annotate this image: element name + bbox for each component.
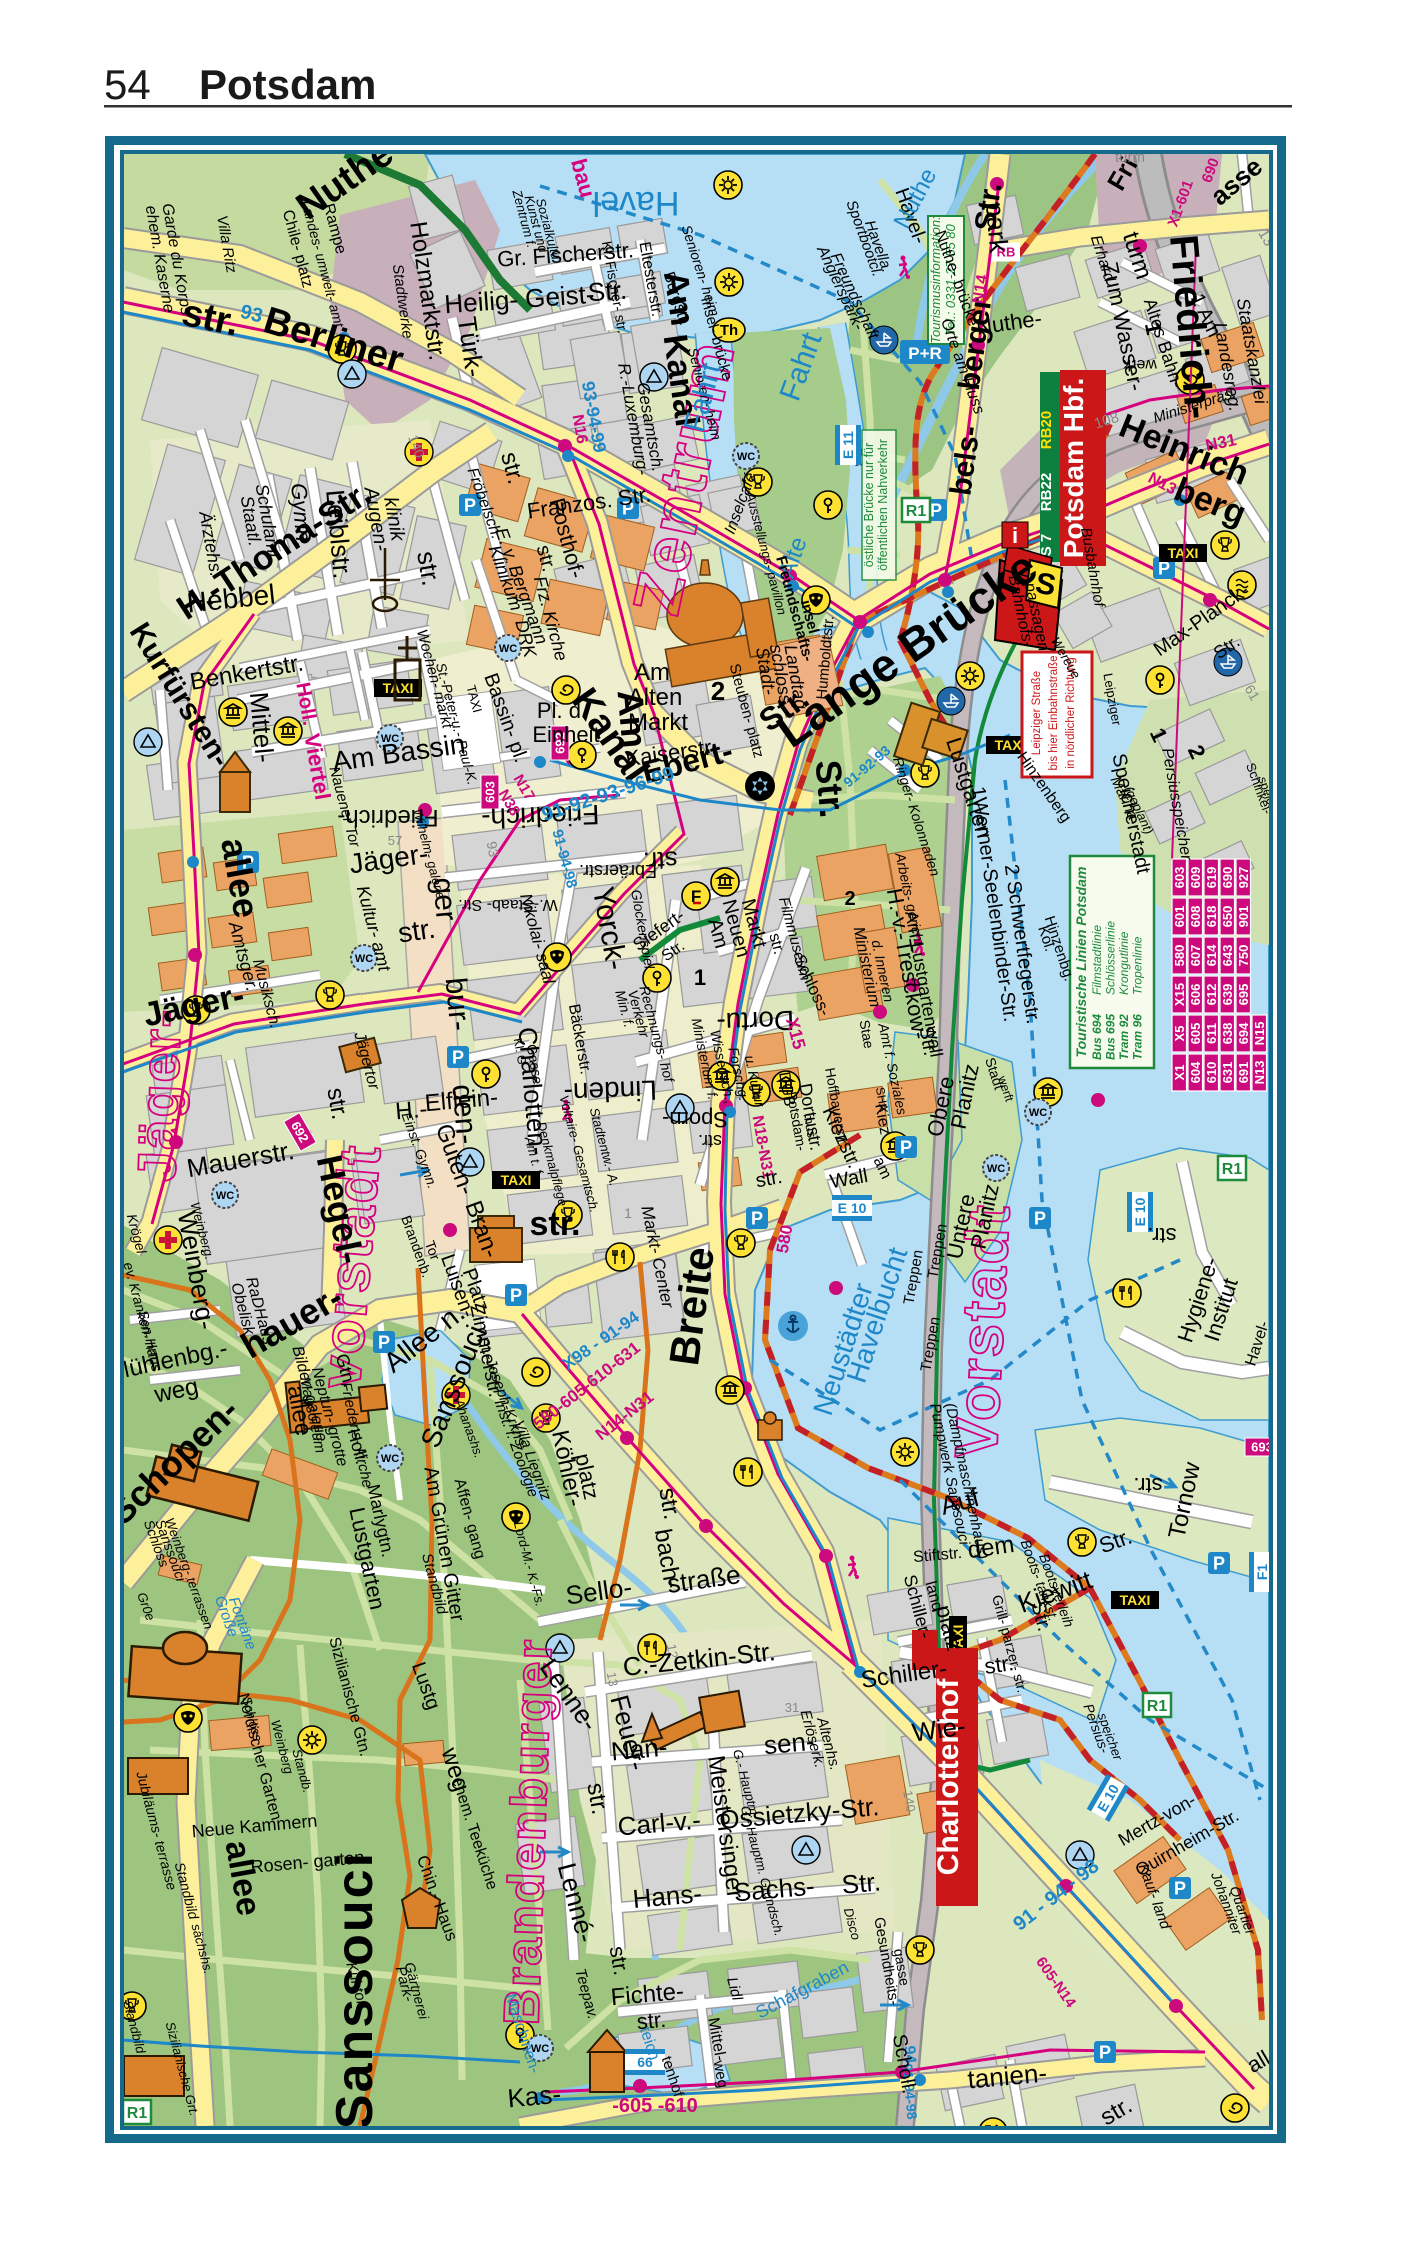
svg-text:1: 1	[694, 965, 706, 990]
svg-text:603: 603	[1172, 867, 1187, 889]
svg-text:S 7: S 7	[1038, 534, 1055, 557]
svg-text:Tram 96: Tram 96	[1131, 1014, 1145, 1060]
svg-text:31: 31	[785, 1700, 799, 1715]
svg-text:Str.: Str.	[808, 758, 854, 819]
svg-text:13: 13	[604, 1671, 621, 1688]
svg-text:Alten: Alten	[628, 684, 683, 711]
svg-text:R1: R1	[127, 2105, 148, 2122]
svg-text:Einheit: Einheit	[532, 722, 599, 747]
svg-text:Pl. d.: Pl. d.	[537, 698, 587, 723]
svg-text:690: 690	[1220, 867, 1235, 889]
svg-text:901: 901	[1236, 906, 1251, 928]
svg-text:611: 611	[1204, 1023, 1219, 1044]
svg-text:Jäger-: Jäger-	[127, 1006, 193, 1182]
svg-text:R1: R1	[1147, 1698, 1168, 1715]
svg-text:610: 610	[1204, 1062, 1219, 1084]
svg-text:601: 601	[1172, 906, 1187, 928]
svg-text:Kas-: Kas-	[506, 2079, 562, 2114]
svg-text:str.: str.	[653, 1486, 685, 1522]
svg-text:580: 580	[1172, 945, 1187, 967]
svg-text:park: park	[980, 201, 1014, 255]
svg-text:H.-: H.-	[394, 1096, 428, 1126]
svg-text:54: 54	[104, 61, 151, 108]
svg-text:R1: R1	[1222, 1161, 1243, 1178]
svg-text:Potsdam: Potsdam	[199, 61, 376, 108]
svg-text:Tram 92: Tram 92	[1117, 1014, 1131, 1060]
svg-text:X5: X5	[1172, 1026, 1187, 1042]
svg-text:93: 93	[484, 840, 502, 858]
svg-text:RB22: RB22	[1038, 473, 1055, 511]
svg-text:Am: Am	[634, 659, 670, 686]
svg-text:werk: werk	[1122, 356, 1158, 373]
svg-text:Linden-: Linden-	[563, 1074, 657, 1108]
svg-text:614: 614	[1204, 944, 1219, 966]
svg-text:Krongutlinie: Krongutlinie	[1117, 931, 1131, 995]
svg-text:str.: str.	[636, 2007, 667, 2034]
svg-text:str.: str.	[411, 549, 447, 588]
svg-text:643: 643	[1220, 945, 1235, 967]
svg-text:X15: X15	[1172, 983, 1187, 1006]
svg-text:F1: F1	[1254, 1564, 1270, 1581]
svg-text:694: 694	[1236, 1022, 1251, 1044]
svg-text:Touristische Linien Potsdam: Touristische Linien Potsdam	[1073, 867, 1089, 1058]
svg-text:bis hier Einbahnstraße: bis hier Einbahnstraße	[1048, 655, 1060, 770]
svg-text:bur-: bur-	[439, 976, 477, 1032]
svg-text:str.: str.	[529, 1205, 580, 1243]
svg-text:N13: N13	[1252, 1061, 1267, 1085]
svg-text:Schlösserlinie: Schlösserlinie	[1104, 921, 1118, 995]
svg-text:str.: str.	[754, 1166, 784, 1192]
svg-text:Bus 694: Bus 694	[1090, 1014, 1104, 1060]
svg-text:650: 650	[1220, 906, 1235, 928]
svg-text:Filmstadtlinie: Filmstadtlinie	[1090, 925, 1104, 995]
svg-text:639: 639	[1220, 984, 1235, 1006]
svg-text:609: 609	[1188, 867, 1203, 889]
svg-text:604: 604	[1188, 1061, 1203, 1083]
svg-text:927: 927	[1236, 867, 1251, 889]
svg-text:Sporn-: Sporn-	[662, 1107, 728, 1132]
svg-text:612: 612	[1204, 984, 1219, 1006]
svg-text:750: 750	[1236, 945, 1251, 967]
svg-text:östliche Brücke nur für: östliche Brücke nur für	[862, 443, 876, 567]
svg-text:-605 -610: -605 -610	[612, 2095, 698, 2117]
svg-text:Havel: Havel	[593, 184, 680, 222]
svg-text:RB20: RB20	[1038, 411, 1055, 449]
svg-text:str.: str.	[396, 913, 437, 949]
svg-text:Nan-: Nan-	[610, 1732, 669, 1767]
svg-text:619: 619	[1204, 867, 1219, 889]
svg-text:Str.: Str.	[840, 1866, 881, 1899]
svg-text:str.: str.	[581, 1781, 613, 1817]
svg-text:691: 691	[1236, 1062, 1251, 1084]
svg-text:Ebräerstr.: Ebräerstr.	[579, 861, 657, 881]
svg-text:618: 618	[1204, 906, 1219, 928]
svg-text:P+R: P+R	[908, 344, 942, 363]
svg-text:Bus 695: Bus 695	[1104, 1014, 1118, 1060]
svg-text:631: 631	[1220, 1062, 1235, 1084]
svg-text:W.-Staab- Str.: W.-Staab- Str.	[458, 896, 558, 913]
svg-text:606: 606	[1188, 984, 1203, 1006]
svg-text:E 10: E 10	[838, 1200, 867, 1216]
svg-text:Mittel-: Mittel-	[244, 691, 280, 764]
svg-text:2: 2	[844, 888, 855, 910]
svg-text:638: 638	[1220, 1023, 1235, 1045]
svg-text:605: 605	[1188, 1023, 1203, 1045]
svg-text:608: 608	[1188, 906, 1203, 928]
svg-text:N15: N15	[1252, 1022, 1267, 1046]
svg-text:str.: str.	[321, 1086, 353, 1122]
svg-text:X1: X1	[1172, 1065, 1187, 1081]
svg-text:607: 607	[1188, 945, 1203, 967]
svg-text:str.: str.	[698, 1131, 722, 1151]
svg-text:57: 57	[388, 833, 402, 848]
svg-text:2: 2	[711, 676, 725, 706]
svg-text:695: 695	[1236, 984, 1251, 1006]
svg-text:Leipziger Straße: Leipziger Straße	[1031, 671, 1043, 755]
svg-text:R1: R1	[906, 503, 927, 520]
svg-text:öffentlichen Nahverkehr: öffentlichen Nahverkehr	[876, 439, 890, 571]
svg-text:E 10: E 10	[1132, 1197, 1148, 1226]
svg-text:Hans-: Hans-	[631, 1878, 703, 1914]
svg-text:Tropenlinie: Tropenlinie	[1131, 936, 1145, 995]
svg-text:E 11: E 11	[840, 431, 856, 459]
svg-text:1: 1	[624, 1205, 632, 1221]
svg-text:str.: str.	[605, 1944, 635, 1977]
svg-text:str.: str.	[1133, 1473, 1162, 1498]
svg-text:Markt: Markt	[628, 709, 688, 736]
svg-text:603: 603	[483, 781, 498, 803]
svg-text:str.: str.	[1147, 1223, 1176, 1248]
svg-text:Charlottenhof: Charlottenhof	[932, 1678, 965, 1876]
